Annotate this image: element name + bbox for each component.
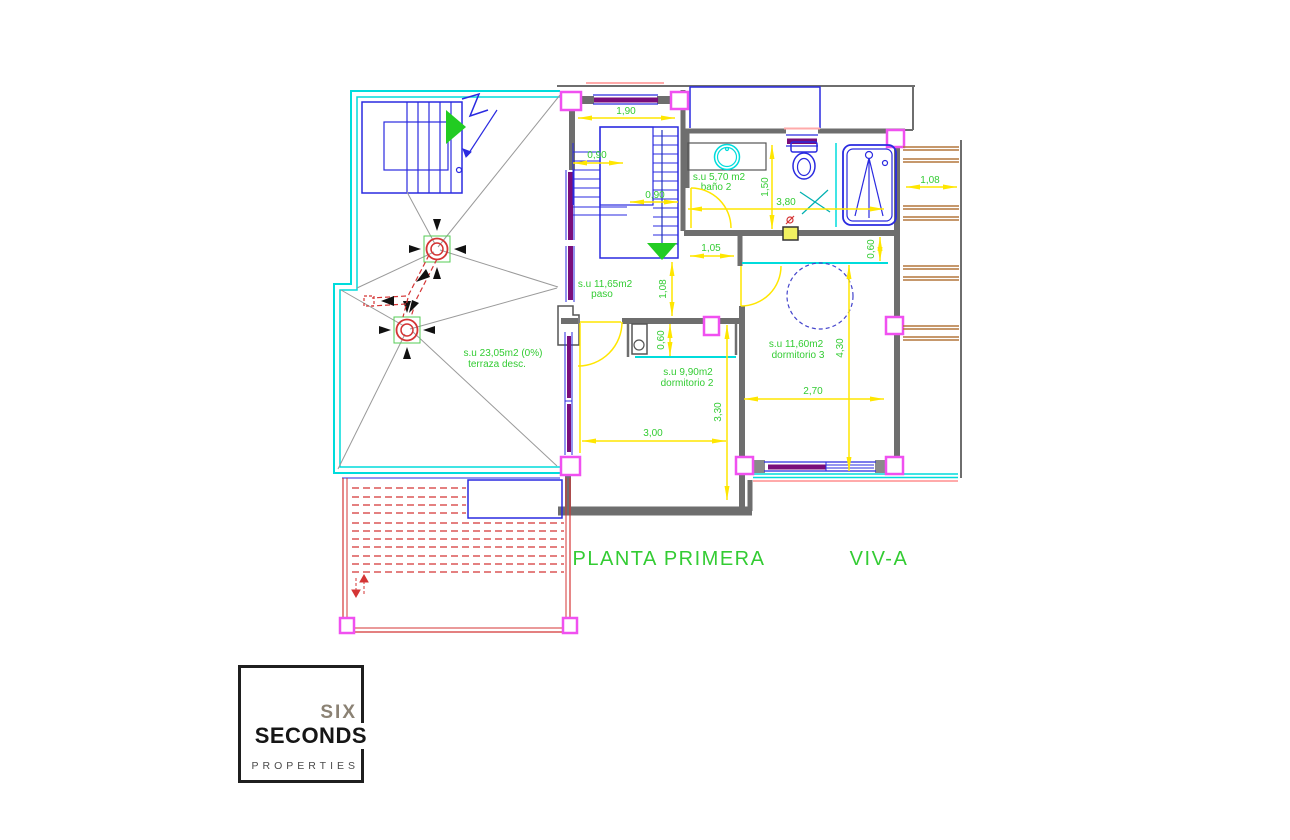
svg-text:0,60: 0,60 (656, 330, 667, 350)
dorm2-name-label: dormitorio 2 (661, 378, 714, 389)
lower-stair-dashed (340, 478, 577, 633)
dimension-closet-dorm2: 0,60 (656, 324, 670, 356)
svg-text:1,05: 1,05 (701, 243, 721, 254)
column-marker (704, 317, 719, 335)
column-marker (561, 457, 580, 475)
column-marker (736, 457, 753, 474)
sink-icon (715, 145, 740, 170)
column-marker (671, 92, 688, 109)
stair-tread-dashes (352, 488, 564, 572)
dorm3-area-label: s.u 11,60m2 (769, 339, 824, 350)
unit-title: VIV-A (850, 548, 909, 570)
dimension-closet-dorm3: 0,60 (866, 237, 880, 261)
floor-plan-drawing: s.u 23,05m2 (0%) terraza desc. (0, 0, 1290, 840)
column-marker (561, 92, 581, 110)
column-marker (886, 317, 903, 334)
terrace-name-label: terraza desc. (468, 359, 526, 370)
column-marker (340, 618, 354, 633)
wall-fixture (783, 227, 798, 240)
svg-text:1,90: 1,90 (616, 106, 636, 117)
window-glass (768, 465, 826, 470)
wardrobe-fixture (632, 324, 647, 354)
six-seconds-logo: SIX SECONDS PROPERTIES (238, 665, 364, 783)
terrace-area: s.u 23,05m2 (0%) terraza desc. (334, 91, 580, 478)
dimension-stair-total: 1,90 (578, 106, 675, 118)
paso-name-label: paso (591, 289, 613, 300)
wall-stub (753, 460, 765, 473)
svg-text:3,30: 3,30 (713, 402, 724, 422)
svg-text:3,00: 3,00 (643, 428, 663, 439)
pergola (903, 140, 961, 478)
roof-drain-icon (394, 317, 420, 343)
svg-text:4,30: 4,30 (835, 338, 846, 358)
roof-outline (690, 87, 820, 128)
logo-six-text: SIX (320, 702, 357, 724)
logo-properties-text: PROPERTIES (252, 760, 360, 772)
svg-text:1,08: 1,08 (658, 279, 669, 299)
up-down-arrow-icon (352, 575, 368, 597)
furniture-circle (787, 263, 853, 329)
dimension-dorm3-length: 4,30 (835, 265, 849, 471)
landing-outline (468, 480, 562, 518)
drain-mark-icon (786, 216, 794, 224)
dimension-paso-width: 1,05 (690, 243, 734, 256)
drain-pipe (364, 255, 437, 317)
svg-text:0,90: 0,90 (587, 150, 607, 161)
dimension-stair-lower-flight: 0,90 (630, 190, 678, 202)
terrace-area-label: s.u 23,05m2 (0%) (464, 348, 543, 359)
marker-cross (802, 190, 828, 214)
window-glass (567, 404, 571, 452)
dimension-dorm2-width: 3,00 (582, 428, 726, 441)
shower-icon (843, 145, 896, 225)
terrace-slope-lines (338, 95, 560, 469)
svg-text:2,70: 2,70 (803, 386, 823, 397)
stair-up-arrow-icon (446, 110, 466, 144)
bathroom-name-label: baño 2 (701, 182, 732, 193)
terrace-stair (362, 94, 497, 193)
svg-text:0,90: 0,90 (645, 190, 665, 201)
dimension-dorm3-width: 2,70 (744, 386, 884, 399)
plan-title: PLANTA PRIMERA (573, 548, 766, 570)
logo-seconds-text: SECONDS (253, 723, 367, 749)
dorm2-area-label: s.u 9,90m2 (663, 367, 713, 378)
bathroom: s.u 5,70 m2 baño 2 (688, 142, 896, 227)
dorm3-name-label: dormitorio 3 (772, 350, 825, 361)
column-marker (563, 618, 577, 633)
window-glass (594, 98, 658, 103)
window-glass (567, 336, 571, 398)
dimension-pergola-width: 1,08 (906, 175, 957, 187)
svg-text:1,08: 1,08 (920, 175, 940, 186)
window-glass (568, 172, 573, 300)
svg-text:3,80: 3,80 (776, 197, 796, 208)
svg-text:1,50: 1,50 (760, 177, 771, 197)
dimension-paso-length: 1,08 (658, 262, 672, 316)
floor-plan-page: s.u 23,05m2 (0%) terraza desc. (0, 0, 1290, 840)
toilet-icon (791, 142, 817, 179)
slope-arrow-icons (379, 219, 466, 359)
window-mullion (565, 240, 575, 246)
column-marker (886, 457, 903, 474)
dimension-dorm2-length: 3,30 (713, 325, 727, 500)
svg-text:0,60: 0,60 (866, 239, 877, 259)
